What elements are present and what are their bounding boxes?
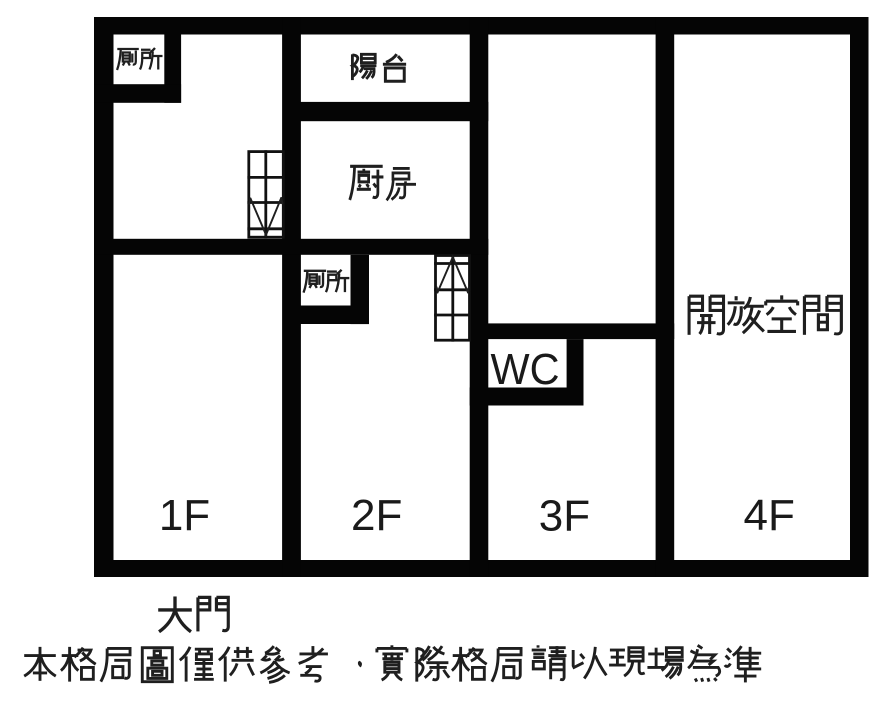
- svg-text:1F: 1F: [159, 491, 210, 540]
- svg-text:4F: 4F: [744, 491, 795, 540]
- svg-text:WC: WC: [491, 345, 560, 394]
- svg-text:2F: 2F: [351, 491, 402, 540]
- svg-text:3F: 3F: [539, 492, 590, 541]
